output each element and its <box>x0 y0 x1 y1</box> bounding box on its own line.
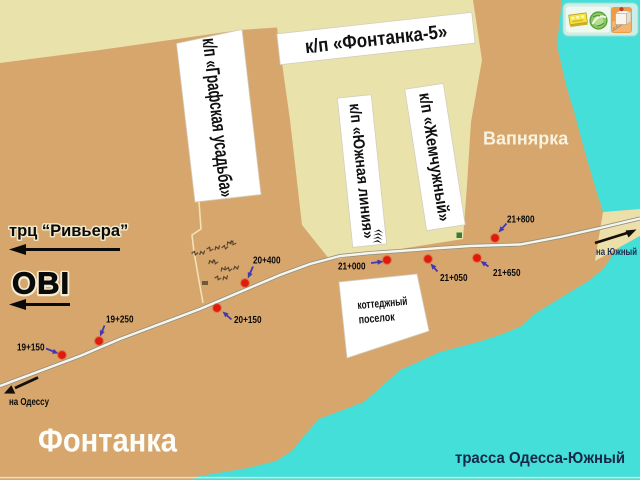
svg-text:19+250: 19+250 <box>106 315 134 326</box>
svg-text:20+400: 20+400 <box>253 256 281 267</box>
svg-text:на Южный: на Южный <box>596 246 637 258</box>
svg-text:Фонтанка: Фонтанка <box>38 422 178 459</box>
svg-text:трасса Одесса-Южный: трасса Одесса-Южный <box>455 450 625 467</box>
svg-text:Вапнярка: Вапнярка <box>483 129 569 149</box>
svg-text:20+150: 20+150 <box>234 315 262 326</box>
svg-text:21+650: 21+650 <box>493 268 521 279</box>
svg-text:OBI: OBI <box>12 266 70 301</box>
svg-text:21+050: 21+050 <box>440 273 468 284</box>
svg-text:19+150: 19+150 <box>17 343 45 354</box>
svg-text:на Одессу: на Одессу <box>9 396 49 408</box>
svg-text:трц “Ривьера”: трц “Ривьера” <box>9 222 128 240</box>
svg-text:21+800: 21+800 <box>507 215 535 226</box>
svg-text:21+000: 21+000 <box>338 262 366 273</box>
